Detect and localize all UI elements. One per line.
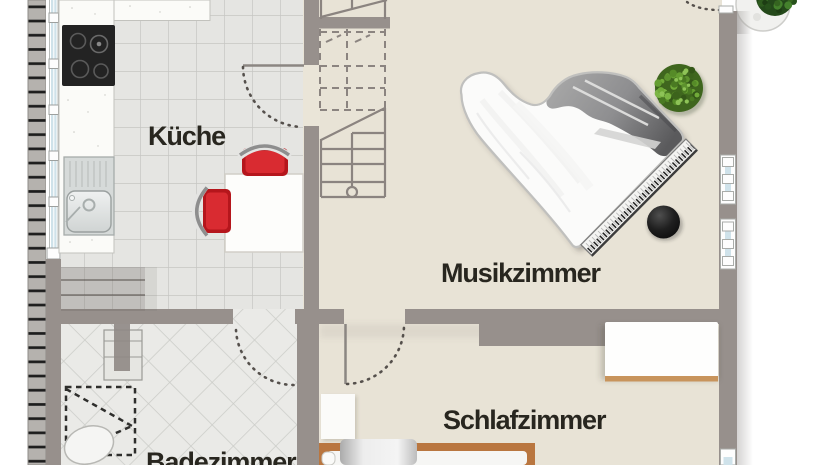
svg-text:Badezimmer: Badezimmer	[146, 447, 297, 465]
svg-text:Musikzimmer: Musikzimmer	[441, 258, 602, 288]
svg-text:Schlafzimmer: Schlafzimmer	[443, 405, 607, 435]
svg-text:Küche: Küche	[148, 121, 226, 151]
